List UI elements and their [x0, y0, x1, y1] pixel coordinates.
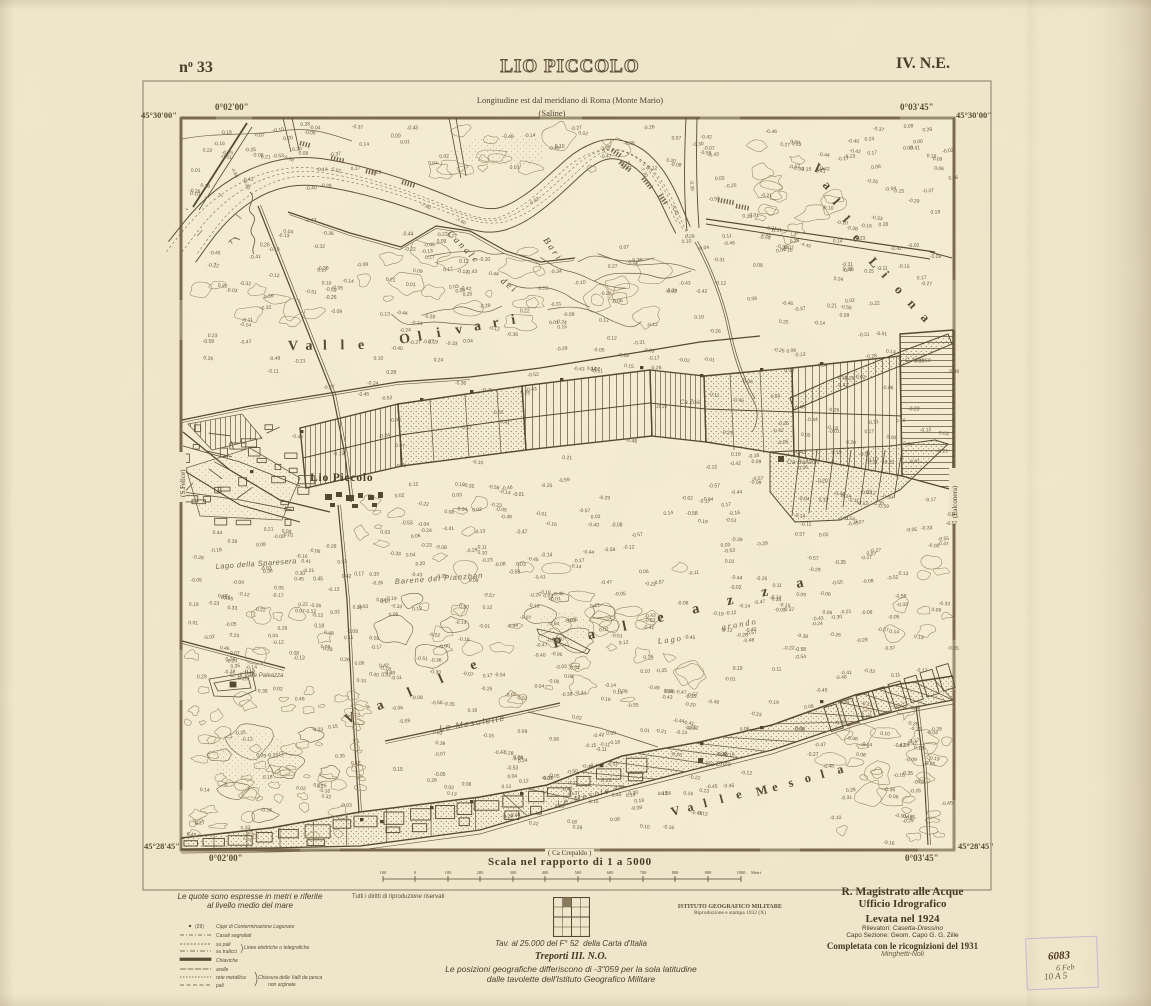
svg-text:0.04: 0.04	[507, 773, 517, 780]
svg-text:0.16: 0.16	[731, 452, 741, 458]
svg-text:su pali: su pali	[216, 942, 231, 948]
svg-text:0.12: 0.12	[501, 784, 511, 790]
svg-text:0.07: 0.07	[911, 705, 921, 712]
svg-text:pali: pali	[215, 983, 225, 989]
svg-text:900: 900	[705, 870, 713, 875]
svg-text:300: 300	[510, 870, 518, 875]
svg-text:700: 700	[640, 870, 648, 875]
svg-text:-0.06: -0.06	[882, 385, 894, 391]
svg-text:0.08: 0.08	[856, 752, 867, 759]
svg-text:0.00: 0.00	[886, 434, 897, 441]
svg-text:-0.48: -0.48	[793, 404, 805, 411]
svg-text:Chiaviche: Chiaviche	[216, 958, 238, 964]
svg-text:100: 100	[380, 870, 387, 875]
svg-text:-0.21: -0.21	[937, 448, 949, 455]
svg-text:0: 0	[414, 870, 417, 875]
svg-text:-0.12: -0.12	[706, 464, 718, 471]
svg-text:0.22: 0.22	[528, 820, 539, 827]
svg-text:0.22: 0.22	[503, 814, 513, 820]
svg-text:-0.21: -0.21	[861, 701, 873, 708]
svg-text:0.19: 0.19	[634, 798, 645, 805]
svg-text:-0.47: -0.47	[837, 383, 849, 389]
svg-text:-0.25: -0.25	[909, 788, 921, 794]
svg-text:0.28: 0.28	[572, 824, 582, 831]
svg-text:-0.03: -0.03	[859, 451, 871, 458]
svg-text:0.17: 0.17	[864, 429, 874, 436]
svg-text:-0.16: -0.16	[662, 824, 674, 831]
svg-text:0.08: 0.08	[461, 781, 471, 788]
svg-text:su tralicci: su tralicci	[216, 949, 238, 955]
svg-text:0.16: 0.16	[896, 418, 906, 425]
svg-text:Cippi di Conterminazione Lagun: Cippi di Conterminazione Lagunare	[216, 924, 295, 930]
svg-text:-0.10: -0.10	[866, 456, 878, 463]
svg-text:0.08: 0.08	[610, 817, 620, 824]
svg-text:-0.36: -0.36	[883, 787, 895, 794]
svg-text:-0.06: -0.06	[741, 379, 753, 386]
svg-text:(29): (29)	[195, 924, 204, 930]
svg-text:-0.49: -0.49	[691, 810, 703, 817]
svg-text:-0.32: -0.32	[883, 460, 895, 466]
svg-text:0.25: 0.25	[555, 804, 565, 810]
svg-text:-0.42: -0.42	[772, 428, 784, 435]
svg-text:-0.41: -0.41	[908, 458, 920, 465]
svg-text:0.16: 0.16	[914, 745, 924, 752]
svg-text:-0.20: -0.20	[908, 406, 920, 412]
svg-text:-0.37: -0.37	[568, 790, 580, 797]
svg-text:-0.04: -0.04	[926, 730, 938, 737]
svg-text:1000: 1000	[737, 870, 747, 875]
svg-text:-0.43: -0.43	[794, 450, 806, 456]
svg-text:0.00: 0.00	[614, 784, 624, 791]
svg-text:0.13: 0.13	[626, 792, 637, 799]
svg-text:-0.05: -0.05	[434, 772, 446, 778]
svg-text:-0.26: -0.26	[828, 407, 840, 413]
svg-text:400: 400	[542, 870, 550, 875]
svg-text:rete metallica: rete metallica	[216, 975, 246, 981]
svg-text:0.03: 0.03	[939, 430, 950, 437]
svg-text:0.09: 0.09	[751, 459, 761, 465]
svg-text:Metri: Metri	[751, 870, 762, 875]
svg-text:0.15: 0.15	[861, 714, 871, 720]
svg-text:-0.17: -0.17	[908, 738, 920, 745]
svg-text:0.20: 0.20	[846, 440, 856, 447]
svg-text:-0.28: -0.28	[898, 742, 910, 749]
svg-text:-0.45: -0.45	[732, 398, 744, 405]
svg-text:0.02: 0.02	[444, 784, 455, 791]
svg-text:-0.25: -0.25	[924, 761, 936, 768]
svg-text:200: 200	[477, 870, 485, 875]
svg-text:-0.12: -0.12	[920, 427, 932, 434]
svg-text:0.13: 0.13	[447, 791, 458, 798]
svg-text:-0.36: -0.36	[542, 775, 554, 782]
svg-text:Chiusura delle Valli da pesca: Chiusura delle Valli da pesca	[258, 975, 323, 981]
svg-text:-0.23: -0.23	[721, 430, 733, 437]
svg-text:-0.42: -0.42	[730, 461, 742, 467]
svg-text:-0.15: -0.15	[587, 799, 599, 805]
svg-text:Casali segnalati: Casali segnalati	[216, 933, 252, 939]
svg-text:0.24: 0.24	[518, 758, 529, 765]
svg-text:500: 500	[575, 870, 583, 875]
svg-text:100: 100	[445, 870, 453, 875]
svg-text:-0.26: -0.26	[843, 376, 855, 383]
svg-text:0.04: 0.04	[903, 441, 914, 448]
svg-text:-0.11: -0.11	[607, 761, 619, 768]
svg-text:-0.01: -0.01	[828, 429, 840, 435]
svg-text:0.15: 0.15	[658, 791, 668, 798]
svg-text:Linee elettriche o telegrafich: Linee elettriche o telegrafiche	[244, 945, 310, 951]
svg-text:0.05: 0.05	[800, 432, 811, 439]
svg-text:-0.44: -0.44	[806, 417, 818, 423]
svg-text:800: 800	[672, 870, 680, 875]
svg-text:600: 600	[607, 870, 615, 875]
svg-text:-0.26: -0.26	[777, 421, 789, 427]
svg-text:non arginate: non arginate	[268, 982, 296, 988]
svg-text:arelle: arelle	[216, 967, 228, 973]
